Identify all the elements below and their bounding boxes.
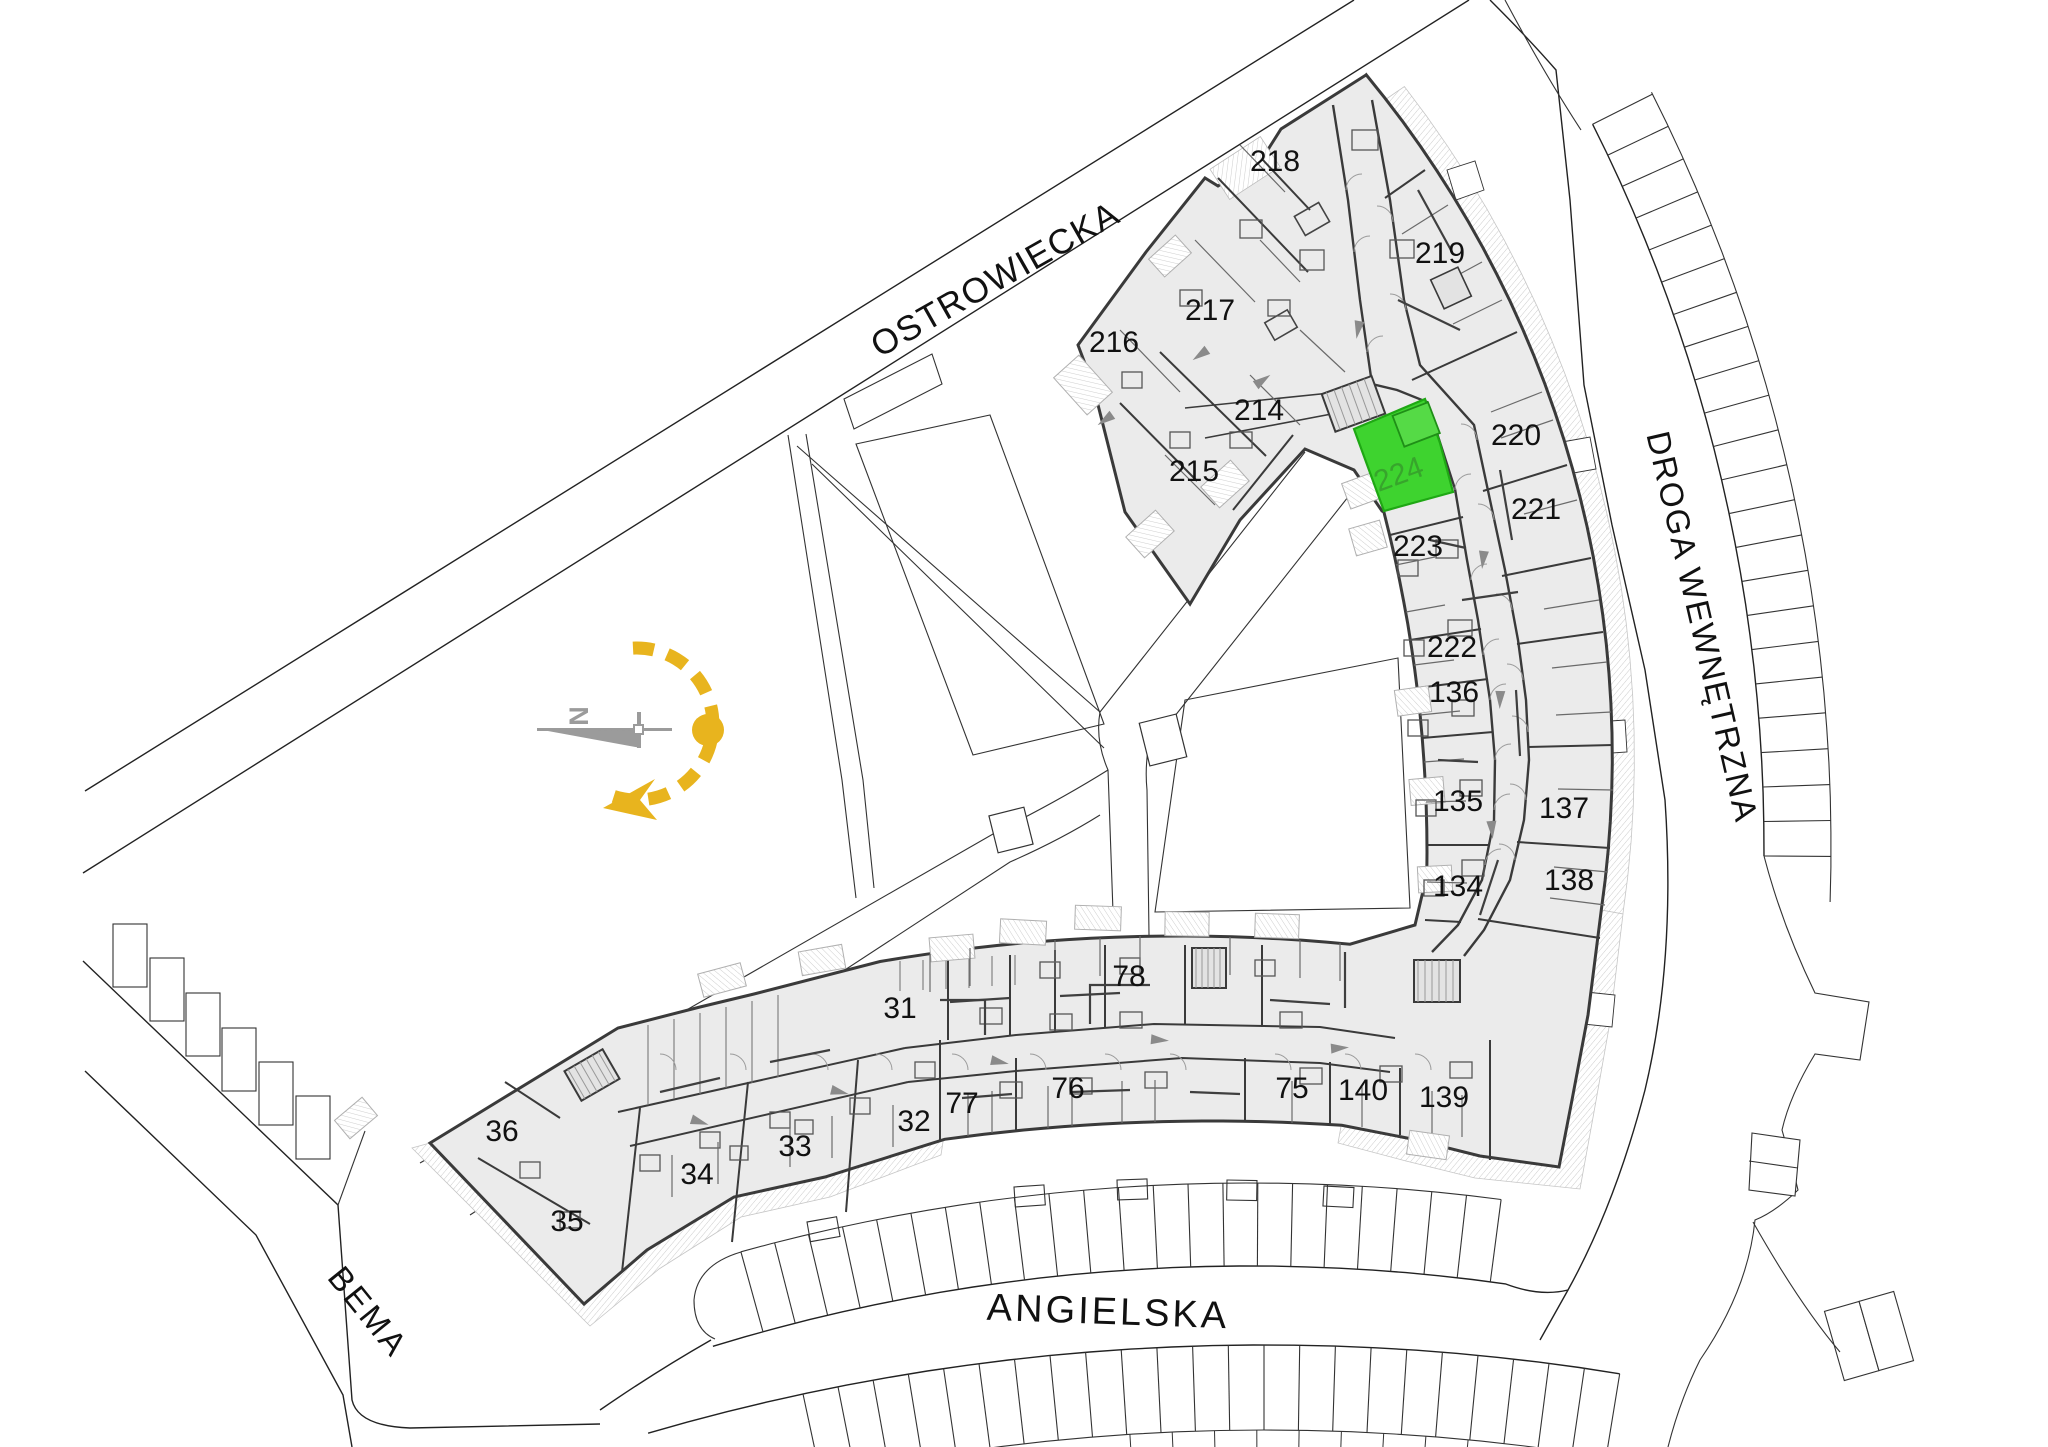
svg-text:139: 139	[1419, 1081, 1469, 1114]
svg-text:35: 35	[550, 1205, 583, 1238]
svg-text:135: 135	[1433, 785, 1483, 818]
svg-text:222: 222	[1427, 631, 1477, 664]
svg-text:214: 214	[1234, 394, 1284, 427]
svg-text:137: 137	[1539, 792, 1589, 825]
svg-text:ANGIELSKA: ANGIELSKA	[986, 1287, 1230, 1337]
svg-text:134: 134	[1433, 870, 1483, 903]
svg-text:140: 140	[1338, 1074, 1388, 1107]
svg-text:220: 220	[1491, 419, 1541, 452]
svg-text:76: 76	[1051, 1072, 1084, 1105]
svg-text:31: 31	[883, 992, 916, 1025]
svg-text:219: 219	[1415, 237, 1465, 270]
svg-text:77: 77	[945, 1087, 978, 1120]
svg-text:75: 75	[1275, 1072, 1308, 1105]
svg-text:33: 33	[778, 1130, 811, 1163]
svg-text:138: 138	[1544, 864, 1594, 897]
svg-text:78: 78	[1112, 960, 1145, 993]
svg-text:223: 223	[1393, 530, 1443, 563]
svg-text:36: 36	[485, 1115, 518, 1148]
svg-text:217: 217	[1185, 294, 1235, 327]
svg-text:34: 34	[680, 1158, 713, 1191]
svg-text:136: 136	[1429, 676, 1479, 709]
svg-text:32: 32	[897, 1105, 930, 1138]
svg-text:221: 221	[1511, 493, 1561, 526]
svg-text:218: 218	[1250, 145, 1300, 178]
svg-text:N: N	[564, 706, 594, 726]
svg-text:215: 215	[1169, 455, 1219, 488]
svg-text:216: 216	[1089, 326, 1139, 359]
